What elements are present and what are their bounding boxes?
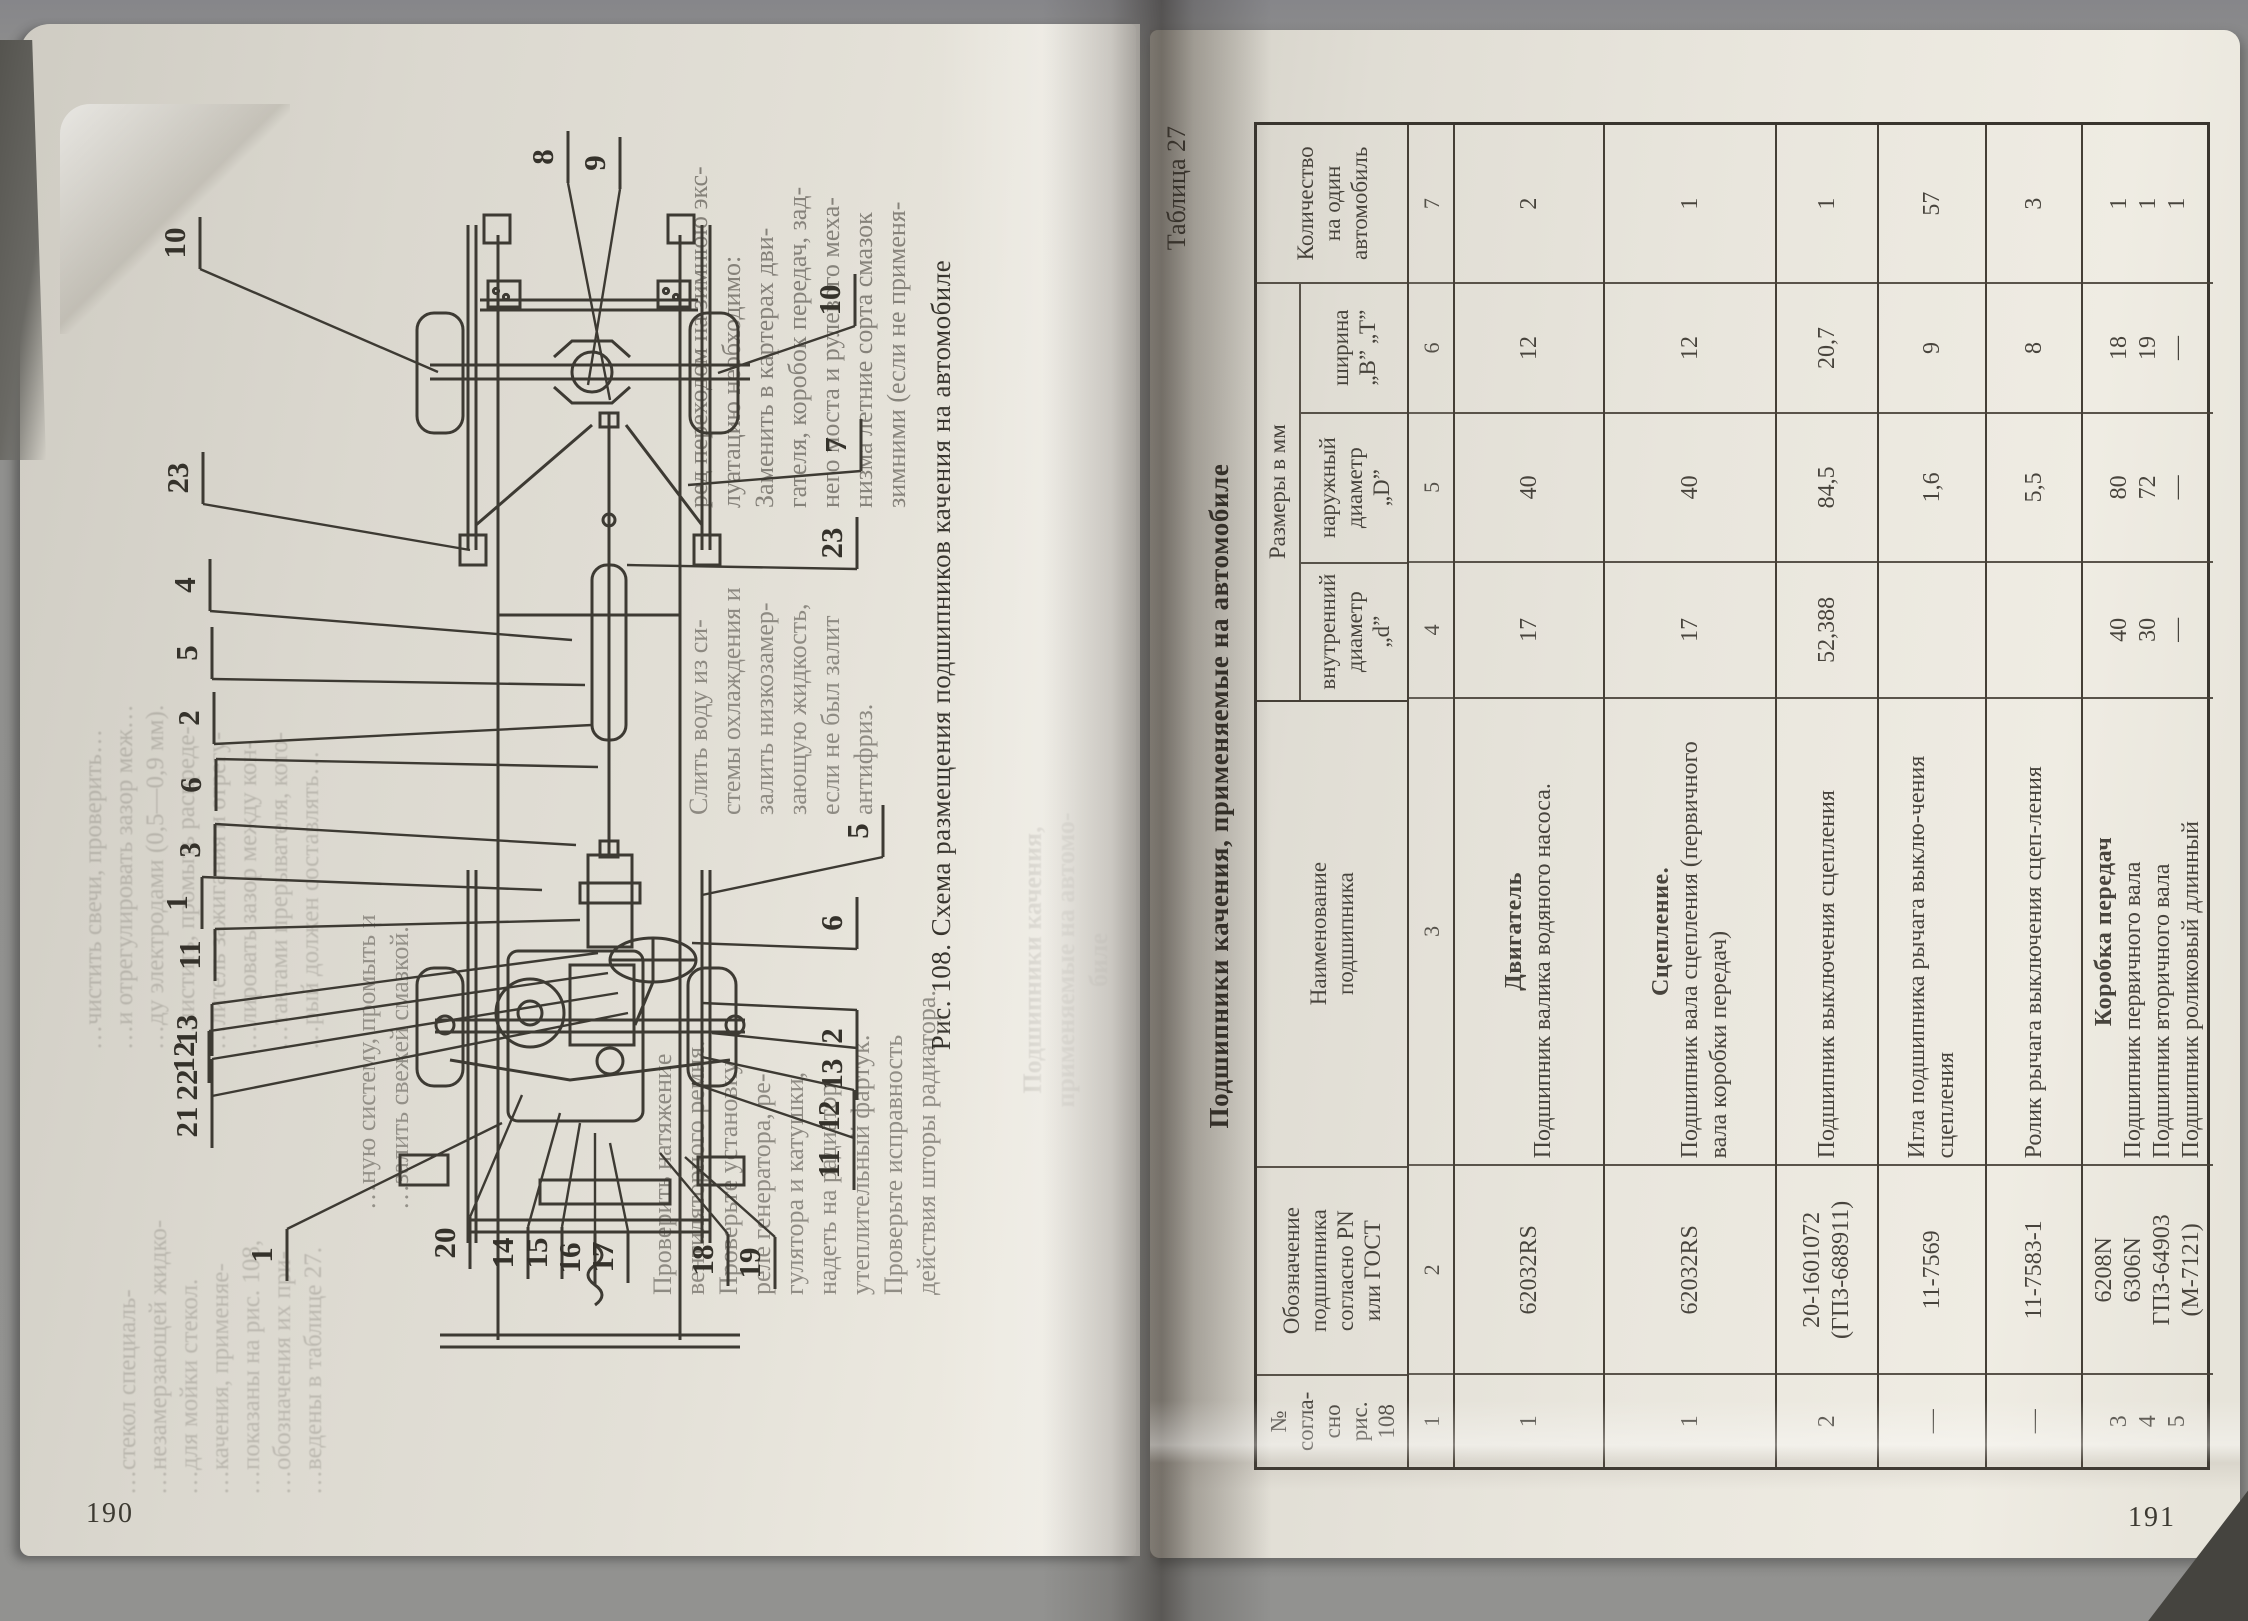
radiator	[540, 1180, 670, 1204]
differential-housing	[554, 341, 630, 403]
callout-number: 1	[159, 895, 194, 911]
cell-outer-diameter: 84,5	[1777, 414, 1877, 563]
page-number-right: 191	[2128, 1502, 2176, 1534]
column-header-sizes: Размеры в мм	[1257, 284, 1301, 700]
callout-leader	[214, 725, 592, 744]
cell-designation: 11-7569	[1879, 1166, 1985, 1375]
cell-designation: 11-7583-1	[1987, 1166, 2081, 1375]
wheel-rear-left	[417, 313, 463, 433]
cell-inner-diameter	[1879, 563, 1985, 698]
sizes-subheaders: внутренний диаметр „d”наружный диаметр „…	[1301, 284, 1407, 700]
column-header-name: Наименование подшипника	[1257, 702, 1407, 1168]
figure-108-chassis-diagram: 8910107232345263111131222211201415161718…	[140, 95, 970, 1385]
column-number: 7	[1409, 125, 1453, 284]
left-page: …чистить свечи, проверить……и отрегулиров…	[20, 24, 1136, 1556]
callout-leader	[702, 857, 883, 895]
cell-num: —	[1879, 1375, 1985, 1467]
cell-quantity: 1	[1777, 125, 1877, 284]
cell-outer-diameter: 40	[1455, 414, 1603, 563]
cell-designation: 6208N 6306N ГПЗ-64903 (М-7121)	[2083, 1166, 2213, 1375]
bearing-name: Подшипник валика водяного насоса.	[1529, 783, 1558, 1158]
callout-leader	[702, 1003, 857, 1010]
callout-number: 11	[811, 1149, 846, 1178]
callout-number: 23	[160, 463, 195, 494]
table-row: 162032RSСцепление.Подшипник вала сцеплен…	[1603, 125, 1775, 1467]
callout-number: 7	[818, 437, 853, 453]
wheel-rear-right	[690, 313, 738, 433]
section-heading: Сцепление.	[1647, 705, 1676, 1159]
text-line: …стекол специаль-	[112, 1065, 143, 1495]
cell-width: 18 19 —	[2083, 284, 2213, 413]
callout-leader	[528, 1113, 560, 1227]
bearing-name: Игла подшипника рычага выклю-чения сцепл…	[1903, 705, 1961, 1159]
bearing-name: Ролик рычага выключения сцеп-ления	[2020, 766, 2049, 1158]
cell-inner-diameter: 17	[1455, 563, 1603, 698]
cell-designation: 62032RS	[1605, 1166, 1775, 1375]
sizes-header-group: Размеры в ммвнутренний диаметр „d”наружн…	[1257, 284, 1407, 702]
callout-number: 2	[814, 1028, 849, 1044]
cell-width: 9	[1879, 284, 1985, 413]
section-heading-ghost: Подшипники качения,применяемые на автомо…	[1016, 700, 1115, 1220]
callout-number: 17	[585, 1242, 620, 1273]
callout-number: 22	[169, 1070, 204, 1101]
column-header-d: внутренний диаметр „d”	[1301, 564, 1407, 700]
callout-number: 13	[169, 1015, 204, 1046]
table-row: —11-7569Игла подшипника рычага выклю-чен…	[1877, 125, 1985, 1467]
callout-number: 15	[519, 1238, 554, 1269]
callout-leader	[209, 973, 608, 1031]
cell-width: 12	[1605, 284, 1775, 413]
cell-designation: 20-1601072 (ГПЗ-688911)	[1777, 1166, 1877, 1375]
callout-leader	[627, 565, 857, 569]
cell-name: Подшипник выключения сцепления	[1777, 699, 1877, 1167]
text-line: применяемые на автомо-	[1049, 700, 1082, 1220]
column-header-qty: Количество на один автомобиль	[1257, 125, 1407, 284]
callout-leader	[202, 877, 542, 890]
callout-number: 8	[525, 149, 560, 165]
gearbox	[588, 855, 632, 947]
callout-number: 5	[169, 645, 204, 661]
cell-num: 1	[1605, 1375, 1775, 1467]
callout-number: 23	[814, 528, 849, 559]
bearings-table: № согла- сно рис. 108Обозначение подшипн…	[1254, 122, 2210, 1470]
callout-number: 11	[172, 940, 207, 969]
section-heading: Коробка передач	[2090, 705, 2119, 1159]
callout-number: 12	[166, 1042, 201, 1073]
cell-num: 2	[1777, 1375, 1877, 1467]
callout-leader	[692, 943, 857, 949]
column-number: 1	[1409, 1375, 1453, 1467]
column-header-designation: Обозначение подшипника согласно PN или Г…	[1257, 1168, 1407, 1376]
cell-name: Игла подшипника рычага выклю-чения сцепл…	[1879, 699, 1985, 1167]
cell-inner-diameter: 17	[1605, 563, 1775, 698]
cell-outer-diameter: 40	[1605, 414, 1775, 563]
callout-leader	[212, 953, 598, 1004]
bearing-name: Подшипник выключения сцепления	[1813, 790, 1842, 1158]
table-row: 220-1601072 (ГПЗ-688911)Подшипник выключ…	[1775, 125, 1877, 1467]
text-line: …и отрегулировать зазор меж…	[109, 100, 140, 1050]
column-number: 4	[1409, 563, 1453, 698]
cell-width: 20,7	[1777, 284, 1877, 413]
callout-number: 9	[577, 155, 612, 171]
right-page-reading-surface: Таблица 27 Подшипники качения, применяем…	[1152, 32, 2238, 1556]
bearing-name: Подшипник первичного вала Подшипник втор…	[2119, 821, 2206, 1158]
cell-quantity: 2	[1455, 125, 1603, 284]
cell-quantity: 57	[1879, 125, 1985, 284]
column-number: 3	[1409, 699, 1453, 1167]
callout-leader	[215, 824, 576, 845]
column-number: 6	[1409, 284, 1453, 413]
cell-outer-diameter: 1,6	[1879, 414, 1985, 563]
callout-number: 6	[814, 915, 849, 931]
table-row: —11-7583-1Ролик рычага выключения сцеп-л…	[1985, 125, 2081, 1467]
callout-leader	[287, 1123, 502, 1229]
callout-number: 1	[244, 1247, 279, 1263]
table-row: 3 4 56208N 6306N ГПЗ-64903 (М-7121)Короб…	[2081, 125, 2213, 1467]
column-header-num: № согла- сно рис. 108	[1257, 1376, 1407, 1467]
column-number-row: 1234567	[1407, 125, 1453, 1467]
cell-width: 8	[1987, 284, 2081, 413]
callout-leader	[215, 920, 580, 929]
page-number-left: 190	[86, 1498, 134, 1530]
cell-inner-diameter	[1987, 563, 2081, 698]
callout-number: 21	[169, 1107, 204, 1138]
column-header-D: наружный диаметр „D”	[1301, 414, 1407, 564]
cell-inner-diameter: 52,388	[1777, 563, 1877, 698]
cell-num: 3 4 5	[2083, 1375, 2213, 1467]
right-page-rotated-layer: Таблица 27 Подшипники качения, применяем…	[1152, 32, 2238, 1556]
callout-leader	[212, 679, 585, 685]
cell-quantity: 1 1 1	[2083, 125, 2213, 284]
callout-number: 20	[427, 1228, 462, 1259]
cell-width: 12	[1455, 284, 1603, 413]
callout-number: 16	[552, 1243, 587, 1274]
callout-leader	[200, 269, 438, 372]
cell-outer-diameter: 5,5	[1987, 414, 2081, 563]
text-line: Подшипники качения,	[1016, 700, 1049, 1220]
cell-num: 1	[1455, 1375, 1603, 1467]
column-header-B: ширина „B” „T”	[1301, 284, 1407, 414]
callout-number: 4	[167, 577, 202, 593]
bumper-bracket	[698, 1157, 744, 1185]
cell-name: Ролик рычага выключения сцеп-ления	[1987, 699, 2081, 1167]
cell-inner-diameter: 40 30 —	[2083, 563, 2213, 698]
callout-number: 10	[812, 285, 847, 316]
callout-number: 3	[172, 842, 207, 858]
column-number: 2	[1409, 1166, 1453, 1375]
text-line: биле	[1082, 700, 1115, 1220]
callout-number: 18	[685, 1245, 720, 1276]
callout-number: 2	[171, 710, 206, 726]
callout-number: 6	[173, 777, 208, 793]
cell-designation: 62032RS	[1455, 1166, 1603, 1375]
callout-number: 19	[732, 1248, 767, 1279]
callout-leader	[562, 1123, 580, 1227]
table-number-label: Таблица 27	[1162, 126, 1192, 326]
table-title: Подшипники качения, применяемые на автом…	[1204, 122, 1235, 1470]
callout-number: 5	[840, 823, 875, 839]
cell-num: —	[1987, 1375, 2081, 1467]
callout-number: 14	[485, 1238, 520, 1269]
right-page: Таблица 27 Подшипники качения, применяем…	[1150, 30, 2240, 1558]
cell-quantity: 1	[1605, 125, 1775, 284]
chassis-drawing	[400, 215, 750, 1347]
spring-bracket	[694, 535, 720, 565]
table-header-row: № согла- сно рис. 108Обозначение подшипн…	[1257, 125, 1407, 1467]
cell-quantity: 3	[1987, 125, 2081, 284]
book-scan: …чистить свечи, проверить……и отрегулиров…	[0, 0, 2248, 1621]
cell-outer-diameter: 80 72 —	[2083, 414, 2213, 563]
section-heading: Двигатель	[1500, 705, 1529, 1159]
cell-name: ДвигательПодшипник валика водяного насос…	[1455, 699, 1603, 1167]
callout-leader	[216, 759, 598, 767]
wheel-front-right	[688, 968, 736, 1086]
cell-name: Сцепление.Подшипник вала сцепления (перв…	[1605, 699, 1775, 1167]
bearing-name: Подшипник вала сцепления (первичного вал…	[1676, 705, 1734, 1159]
text-line: …чистить свечи, проверить…	[78, 100, 109, 1050]
distributor	[597, 1048, 623, 1074]
callout-leader	[203, 504, 470, 550]
callout-number: 12	[811, 1101, 846, 1132]
column-number: 5	[1409, 414, 1453, 563]
callout-leader	[610, 1143, 628, 1231]
cell-name: Коробка передачПодшипник первичного вала…	[2083, 699, 2213, 1167]
table-row: 162032RSДвигательПодшипник валика водяно…	[1453, 125, 1603, 1467]
callout-number: 10	[157, 228, 192, 259]
callout-leader	[688, 471, 861, 485]
callout-leader	[470, 1095, 522, 1217]
wheel-front-left	[417, 968, 463, 1086]
